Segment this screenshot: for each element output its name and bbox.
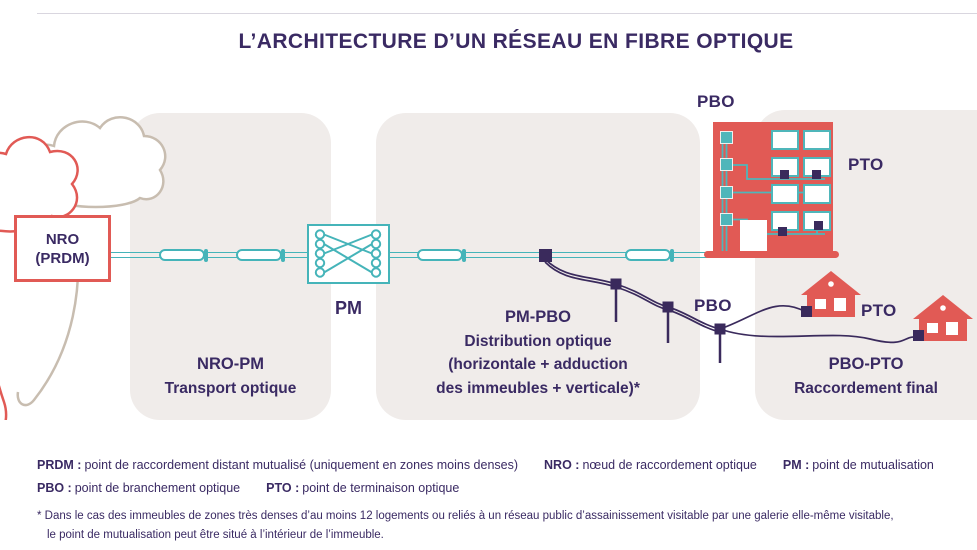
legend-row-1: PRDM :point de raccordement distant mutu… — [37, 458, 967, 472]
building-pbo-tag: PBO — [697, 92, 735, 112]
section-distribution-title: PM-PBO — [376, 306, 700, 330]
pto-terminal-square — [812, 170, 821, 179]
section-distribution-caption: PM-PBO Distribution optique (horizontale… — [376, 306, 700, 400]
pole-pbo-square — [715, 324, 726, 335]
nro-label-line1: NRO — [46, 230, 79, 249]
fiber-splice-icon — [159, 249, 205, 261]
fiber-network-infographic: { "title": "L\u2019ARCHITECTURE D\u2019U… — [0, 0, 977, 550]
legend-item-pbo: PBO :point de branchement optique — [37, 481, 240, 495]
house2-drop-line — [720, 329, 920, 342]
fiber-splice-icon — [417, 249, 463, 261]
pto-terminal-square — [778, 227, 787, 236]
legend-def: point de branchement optique — [75, 481, 240, 495]
section-distribution-line: (horizontale + adduction — [376, 353, 700, 377]
pole-pbo-square — [611, 279, 622, 290]
section-raccordement-line: Raccordement final — [755, 377, 977, 401]
building-window — [803, 130, 831, 150]
section-distribution-line: des immeubles + verticale)* — [376, 377, 700, 401]
house-pto-tag: PTO — [861, 301, 897, 321]
nro-node-box: NRO (PRDM) — [14, 215, 111, 282]
legend-item-prdm: PRDM :point de raccordement distant mutu… — [37, 458, 518, 472]
building-base-bar — [704, 251, 839, 258]
nro-label-line2: (PRDM) — [35, 249, 89, 268]
legend-row-2: PBO :point de branchement optique PTO :p… — [37, 481, 967, 495]
legend-def: point de mutualisation — [812, 458, 934, 472]
optical-crossconnect-icon — [309, 226, 387, 281]
section-transport-caption: NRO-PM Transport optique — [130, 353, 331, 400]
floor-pbo-square — [720, 158, 733, 171]
section-transport-line: Transport optique — [130, 377, 331, 401]
house-pto-square — [801, 306, 812, 317]
footnote-line-1: * Dans le cas des immeubles de zones trè… — [47, 507, 977, 526]
floor-pbo-square — [720, 186, 733, 199]
page-title: L’ARCHITECTURE D’UN RÉSEAU EN FIBRE OPTI… — [55, 30, 977, 54]
house-pto-square — [913, 330, 924, 341]
legend-term: PM : — [783, 458, 809, 472]
pto-terminal-square — [780, 170, 789, 179]
house1-drop-line — [720, 306, 806, 329]
footnote: * Dans le cas des immeubles de zones trè… — [37, 507, 977, 545]
section-raccordement-title: PBO-PTO — [755, 353, 977, 377]
legend-term: PBO : — [37, 481, 72, 495]
red-stem-line — [0, 236, 6, 420]
legend-term: PRDM : — [37, 458, 81, 472]
floor-pbo-square — [720, 131, 733, 144]
top-divider — [37, 13, 977, 14]
building-pto-tag: PTO — [848, 155, 884, 175]
pm-node-box — [307, 224, 390, 284]
footnote-line-2: le point de mutualisation peut être situ… — [47, 526, 977, 545]
legend-def: point de raccordement distant mutualisé … — [84, 458, 518, 472]
building-window — [771, 130, 799, 150]
section-raccordement-caption: PBO-PTO Raccordement final — [755, 353, 977, 400]
legend: PRDM :point de raccordement distant mutu… — [37, 458, 967, 495]
legend-def: nœud de raccordement optique — [582, 458, 756, 472]
section-transport-title: NRO-PM — [130, 353, 331, 377]
pto-terminal-square — [814, 221, 823, 230]
legend-term: NRO : — [544, 458, 579, 472]
building-window — [803, 184, 831, 204]
section-distribution-line: Distribution optique — [376, 330, 700, 354]
building-window — [771, 184, 799, 204]
floor-pbo-square — [720, 213, 733, 226]
fiber-splice-icon — [236, 249, 282, 261]
legend-item-pto: PTO :point de terminaison optique — [266, 481, 459, 495]
legend-def: point de terminaison optique — [302, 481, 459, 495]
legend-item-pm: PM :point de mutualisation — [783, 458, 934, 472]
building-door — [740, 220, 767, 252]
legend-term: PTO : — [266, 481, 299, 495]
legend-item-nro: NRO :nœud de raccordement optique — [544, 458, 757, 472]
